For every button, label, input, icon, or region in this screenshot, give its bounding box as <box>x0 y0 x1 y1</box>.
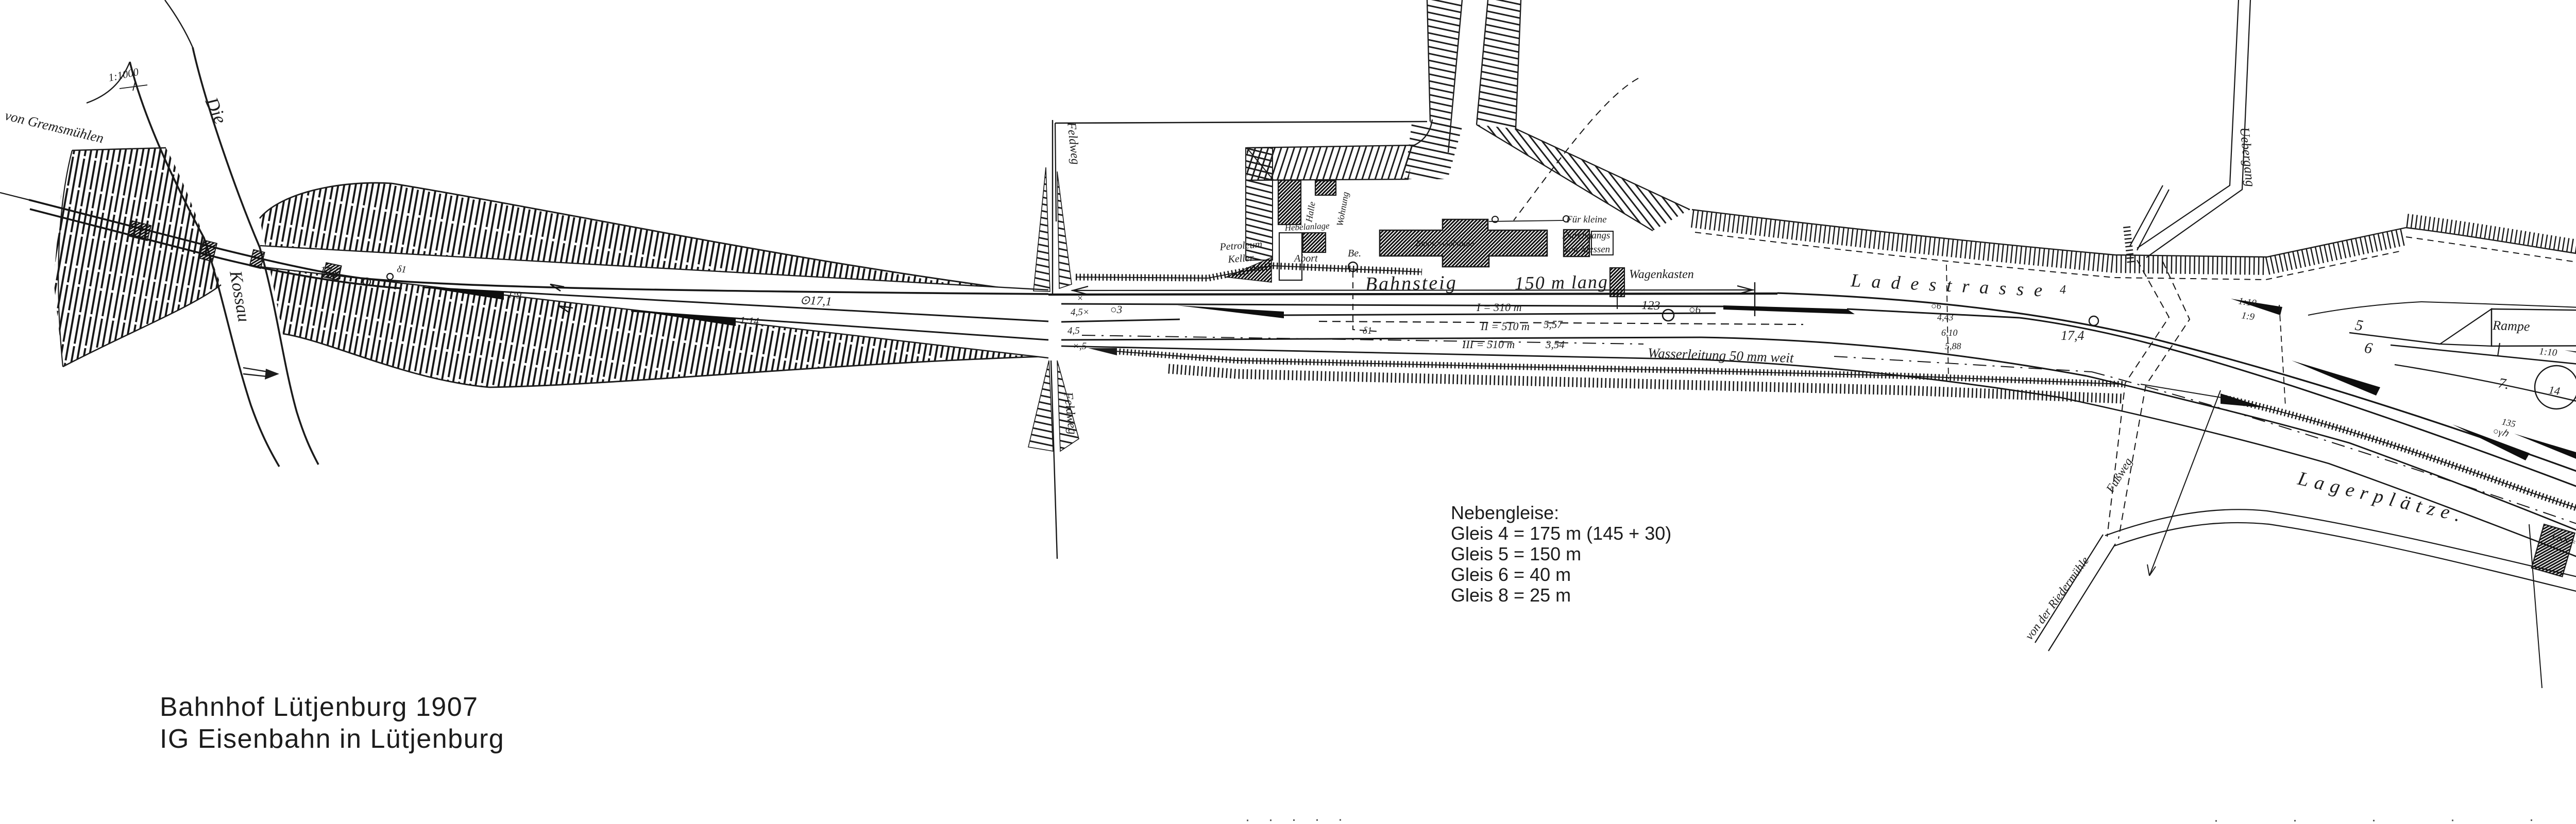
svg-text:Gleis 6 = 40 m: Gleis 6 = 40 m <box>1451 564 1571 585</box>
svg-text:Gleis 4 = 175 m (145 + 30): Gleis 4 = 175 m (145 + 30) <box>1451 523 1671 544</box>
svg-text:Bahnsteig: Bahnsteig <box>1365 272 1458 295</box>
svg-text:4,5: 4,5 <box>1067 325 1080 336</box>
svg-text:○3: ○3 <box>1110 303 1122 316</box>
svg-text:5,88: 5,88 <box>1945 341 1961 351</box>
svg-text:123: 123 <box>1641 299 1660 313</box>
svg-text:Be.: Be. <box>1348 248 1361 259</box>
svg-text:1:9: 1:9 <box>2241 310 2255 322</box>
svg-text:IG Eisenbahn in Lütjenburg: IG Eisenbahn in Lütjenburg <box>160 724 504 754</box>
svg-text:5,57: 5,57 <box>1544 318 1563 331</box>
svg-text:○6: ○6 <box>1689 303 1701 316</box>
svg-text:×,5: ×,5 <box>1073 341 1087 352</box>
svg-text:4: 4 <box>2060 283 2066 297</box>
svg-text:Bahnhof Lütjenburg 1907: Bahnhof Lütjenburg 1907 <box>160 692 479 722</box>
svg-text:Keller: Keller <box>1227 252 1255 266</box>
svg-text:Wagenkasten: Wagenkasten <box>1629 268 1694 281</box>
svg-text:1:9: 1:9 <box>507 289 522 301</box>
svg-text:4,43: 4,43 <box>1937 312 1954 322</box>
svg-text:von Messen: von Messen <box>1564 244 1610 255</box>
svg-text:1:14: 1:14 <box>740 315 759 328</box>
svg-text:Gleis 8 = 25 m: Gleis 8 = 25 m <box>1451 585 1571 606</box>
svg-text:Nebengleise:: Nebengleise: <box>1451 502 1559 523</box>
svg-text:Empf.=Gebäude: Empf.=Gebäude <box>1415 238 1474 248</box>
svg-text:Durchgangs: Durchgangs <box>1562 230 1610 241</box>
svg-text:Abort: Abort <box>1293 253 1318 264</box>
svg-text:Für kleine: Für kleine <box>1566 214 1607 225</box>
svg-text:17,0: 17,0 <box>319 264 341 279</box>
svg-text:3,54: 3,54 <box>1545 338 1565 351</box>
svg-text:6,10: 6,10 <box>1941 328 1958 338</box>
svg-text:150 m lang: 150 m lang <box>1514 271 1608 294</box>
svg-text:1:10: 1:10 <box>2539 346 2558 358</box>
svg-text:×: × <box>1077 293 1083 304</box>
svg-text:II = 510 m: II = 510 m <box>1480 320 1530 333</box>
svg-text:17,4: 17,4 <box>2061 328 2084 343</box>
svg-text:δ1: δ1 <box>397 264 407 276</box>
svg-text:○6: ○6 <box>1931 301 1941 311</box>
svg-text:Rampe: Rampe <box>2492 318 2530 334</box>
svg-text:I = 310 m: I = 310 m <box>1476 301 1522 314</box>
svg-text:δ1: δ1 <box>1363 325 1372 336</box>
svg-text:4,5×: 4,5× <box>1071 307 1090 318</box>
svg-text:⊙17,1: ⊙17,1 <box>800 294 832 308</box>
svg-text:Gleis 5 = 150 m: Gleis 5 = 150 m <box>1451 543 1581 564</box>
svg-text:III = 510 m: III = 510 m <box>1462 338 1515 351</box>
